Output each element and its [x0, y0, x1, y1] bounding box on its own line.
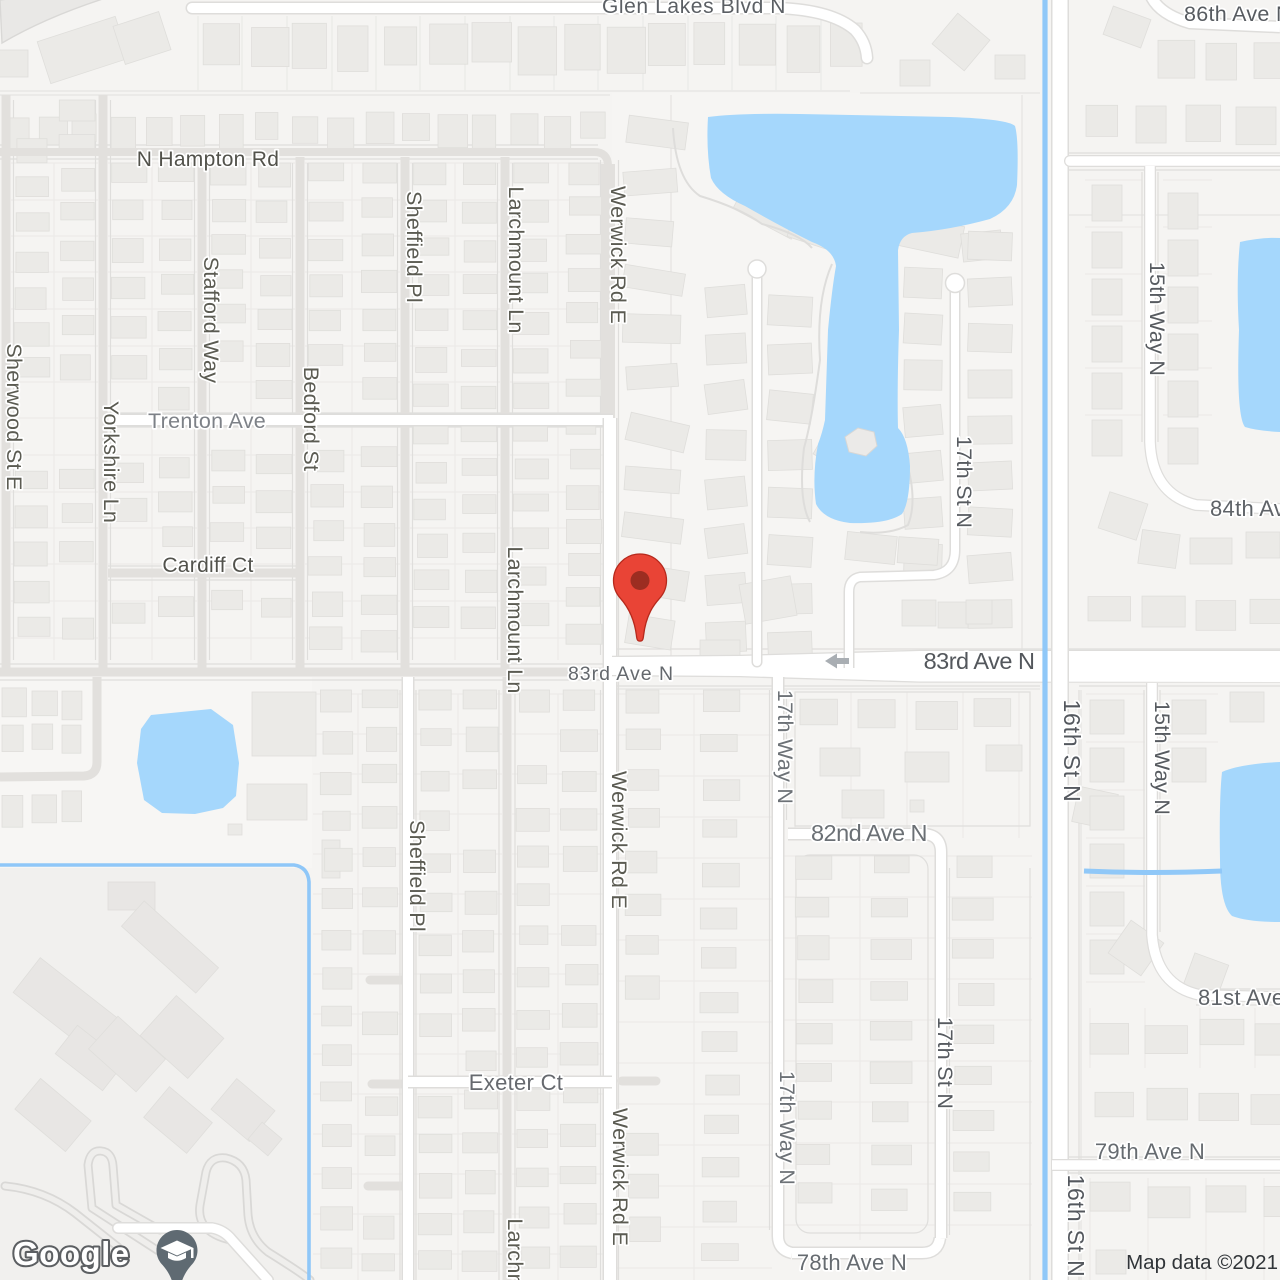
- svg-text:16th St N: 16th St N: [1059, 699, 1085, 802]
- svg-text:15th Way N: 15th Way N: [1145, 262, 1169, 377]
- svg-text:86th Ave N: 86th Ave N: [1184, 2, 1280, 26]
- svg-text:83rd Ave N: 83rd Ave N: [568, 663, 674, 685]
- svg-text:17th Way N: 17th Way N: [775, 1071, 799, 1186]
- svg-text:17th Way N: 17th Way N: [773, 690, 797, 805]
- svg-text:17th St N: 17th St N: [933, 1017, 957, 1109]
- svg-text:Sherwood St E: Sherwood St E: [2, 343, 26, 490]
- svg-text:Cardiff Ct: Cardiff Ct: [162, 554, 253, 577]
- svg-text:Sheffield Pl: Sheffield Pl: [402, 191, 426, 303]
- svg-text:Larchmount Ln: Larchmount Ln: [504, 186, 528, 333]
- svg-text:Glen Lakes Blvd N: Glen Lakes Blvd N: [602, 0, 786, 18]
- svg-text:82nd Ave N: 82nd Ave N: [811, 820, 927, 846]
- svg-text:N Hampton Rd: N Hampton Rd: [137, 148, 280, 171]
- svg-text:Yorkshire Ln: Yorkshire Ln: [99, 401, 123, 523]
- svg-text:Stafford Way: Stafford Way: [199, 257, 223, 384]
- svg-text:Trenton Ave: Trenton Ave: [148, 409, 266, 433]
- svg-text:Map data ©2021: Map data ©2021: [1126, 1251, 1278, 1274]
- svg-text:78th Ave N: 78th Ave N: [797, 1250, 907, 1275]
- svg-text:Larchmount Ln: Larchmount Ln: [503, 1218, 527, 1280]
- svg-text:Werwick Rd E: Werwick Rd E: [608, 1108, 632, 1246]
- svg-text:Werwick Rd E: Werwick Rd E: [607, 771, 631, 909]
- svg-text:15th Way N: 15th Way N: [1150, 701, 1174, 816]
- svg-text:84th Ave N: 84th Ave N: [1210, 496, 1280, 521]
- svg-text:Google: Google: [13, 1235, 130, 1272]
- svg-text:Werwick Rd E: Werwick Rd E: [606, 186, 630, 324]
- svg-text:83rd Ave N: 83rd Ave N: [924, 648, 1035, 674]
- svg-text:Larchmount Ln: Larchmount Ln: [503, 546, 527, 693]
- svg-text:Bedford St: Bedford St: [299, 367, 323, 472]
- svg-text:81st Ave N: 81st Ave N: [1198, 985, 1280, 1010]
- svg-text:Sheffield Pl: Sheffield Pl: [405, 820, 429, 932]
- svg-text:17th St N: 17th St N: [952, 436, 976, 528]
- svg-text:Exeter Ct: Exeter Ct: [469, 1070, 563, 1095]
- svg-text:79th Ave N: 79th Ave N: [1095, 1139, 1205, 1164]
- svg-text:16th St N: 16th St N: [1063, 1174, 1089, 1277]
